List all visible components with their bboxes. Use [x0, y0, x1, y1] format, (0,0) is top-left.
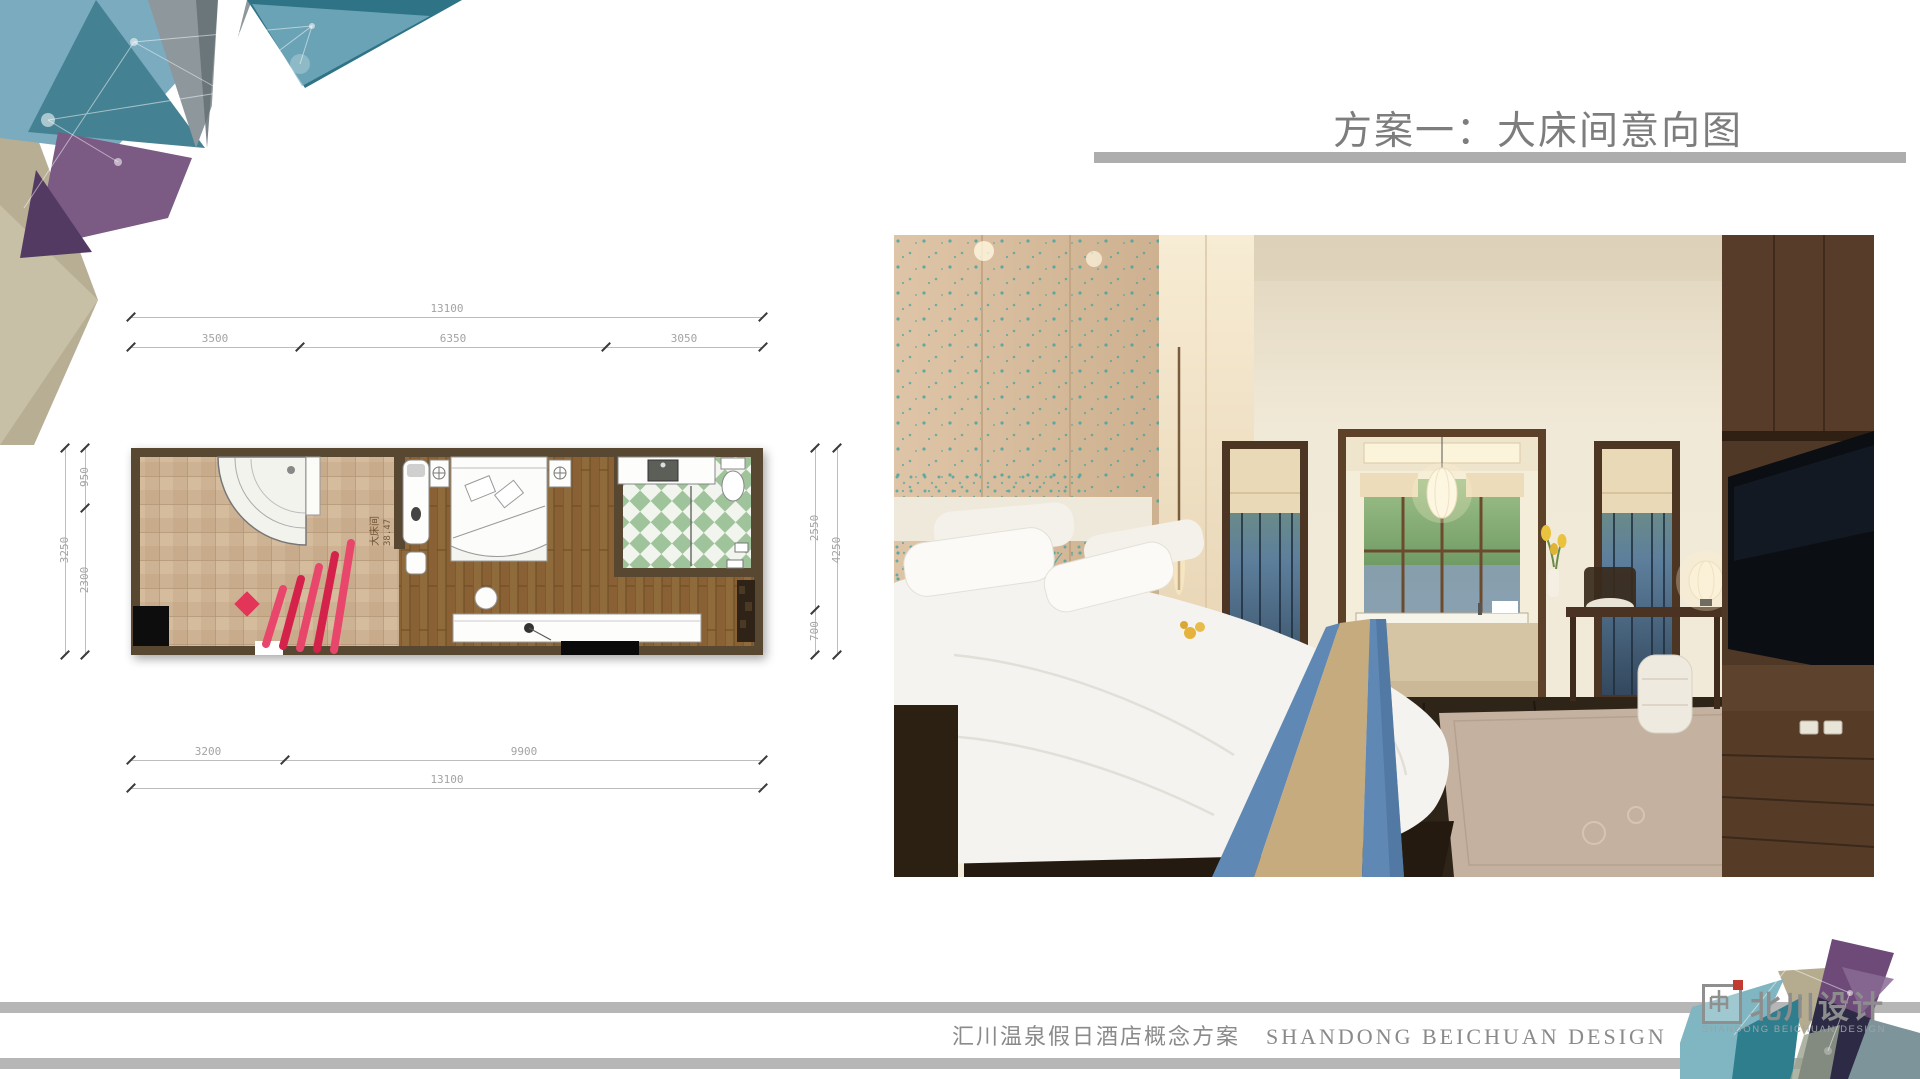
dim-label-left-total: 3250 [58, 522, 72, 578]
logo-company-name: 北川设计 [1750, 982, 1886, 1027]
plan-nightstand-left [430, 460, 449, 487]
footer-bar-bottom [0, 1058, 1920, 1069]
ceiling-spotlight [1086, 251, 1102, 267]
dim-label: 700 [808, 603, 822, 659]
dim-label: 2550 [808, 500, 822, 556]
dim-label: 950 [78, 449, 92, 505]
plan-room-area: 38.47 [383, 519, 393, 546]
dim-line [131, 760, 763, 761]
plan-bathroom [614, 457, 757, 577]
logo-company-subtitle: SHANDONG BEICHUAN DESIGN [1702, 1024, 1898, 1035]
ceramic-stool [1638, 655, 1692, 733]
presentation-slide: 方案一：大床间意向图 13100 3500 6350 3050 3200 990… [0, 0, 1920, 1079]
dim-label-bottom-total: 13100 [430, 773, 463, 786]
corner-decoration-top-left [0, 0, 480, 445]
dim-label: 3200 [195, 745, 222, 758]
tv-cabinet [1722, 235, 1874, 877]
power-outlet [1800, 721, 1818, 734]
footer-bar-top [0, 1002, 1920, 1013]
bedside-cabinet [894, 705, 958, 877]
plan-toilet [722, 471, 744, 501]
plan-nightstand-right [549, 460, 571, 487]
ceiling-spotlight [974, 241, 994, 261]
dim-label: 3050 [671, 332, 698, 345]
logo-red-square [1733, 980, 1743, 990]
dim-label: 9900 [511, 745, 538, 758]
plan-room-label: 大床间 [368, 516, 381, 546]
lantern-pendant [1412, 463, 1472, 523]
dim-line [131, 788, 763, 789]
plan-tv [561, 641, 639, 655]
plan-stool [475, 587, 497, 609]
footer-company-name: SHANDONG BEICHUAN DESIGN [1266, 1024, 1667, 1049]
plan-column [133, 606, 169, 646]
plan-tv-console [453, 614, 701, 642]
beichuan-logo-mark [1702, 984, 1742, 1024]
logo-mark-glyph [1705, 987, 1733, 1015]
dim-label-right-total: 4250 [830, 522, 844, 578]
floorplan-drawing: 大床间 38.47 [131, 448, 763, 655]
footer-text: 汇川温泉假日酒店概念方案SHANDONG BEICHUAN DESIGN [952, 1019, 1667, 1051]
plan-bed [451, 457, 547, 561]
slide-title: 方案一：大床间意向图 [1333, 100, 1893, 156]
power-outlet [1824, 721, 1842, 734]
plan-wardrobe [737, 580, 755, 642]
footer-project-name: 汇川温泉假日酒店概念方案 [952, 1024, 1240, 1049]
photo-king-room [894, 235, 1874, 877]
title-underline-bar [1094, 152, 1906, 163]
plan-chaise [403, 460, 429, 574]
dim-label: 2300 [78, 552, 92, 608]
